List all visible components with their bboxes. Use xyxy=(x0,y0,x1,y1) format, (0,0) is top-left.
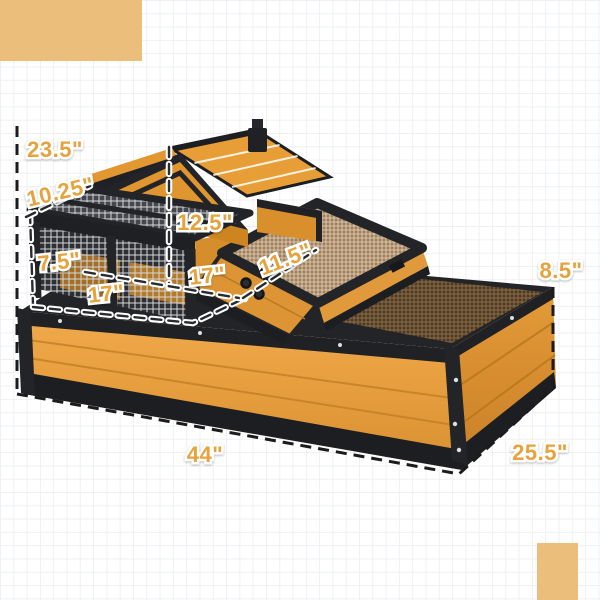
screw xyxy=(457,448,461,452)
screw xyxy=(453,422,457,426)
product-dimension-diagram: 23.5" 10.25" 12.5" 7.5" 17" 17" 11.5" 8.… xyxy=(0,0,600,600)
label-run-height: 7.5" xyxy=(37,247,82,276)
screw xyxy=(510,316,514,320)
screw xyxy=(198,331,202,335)
label-overall-height: 23.5" xyxy=(27,137,83,162)
corner-accent-bottom-right xyxy=(537,543,578,600)
chimney xyxy=(248,128,267,152)
screw xyxy=(58,319,62,323)
screw xyxy=(338,343,342,347)
label-overall-length: 44" xyxy=(187,442,223,467)
label-house-height: 12.5" xyxy=(177,210,233,235)
label-base-height: 8.5" xyxy=(539,258,582,283)
label-run-width: 17" xyxy=(87,279,126,308)
label-overall-depth: 25.5" xyxy=(512,440,568,465)
label-house-width: 17" xyxy=(188,261,227,290)
corner-accent-top-left xyxy=(0,0,142,61)
hutch-diagram-canvas: 23.5" 10.25" 12.5" 7.5" 17" 17" 11.5" 8.… xyxy=(0,0,600,600)
latch-hook xyxy=(242,279,251,288)
house-right-wall-post xyxy=(316,210,322,242)
screw xyxy=(454,378,458,382)
